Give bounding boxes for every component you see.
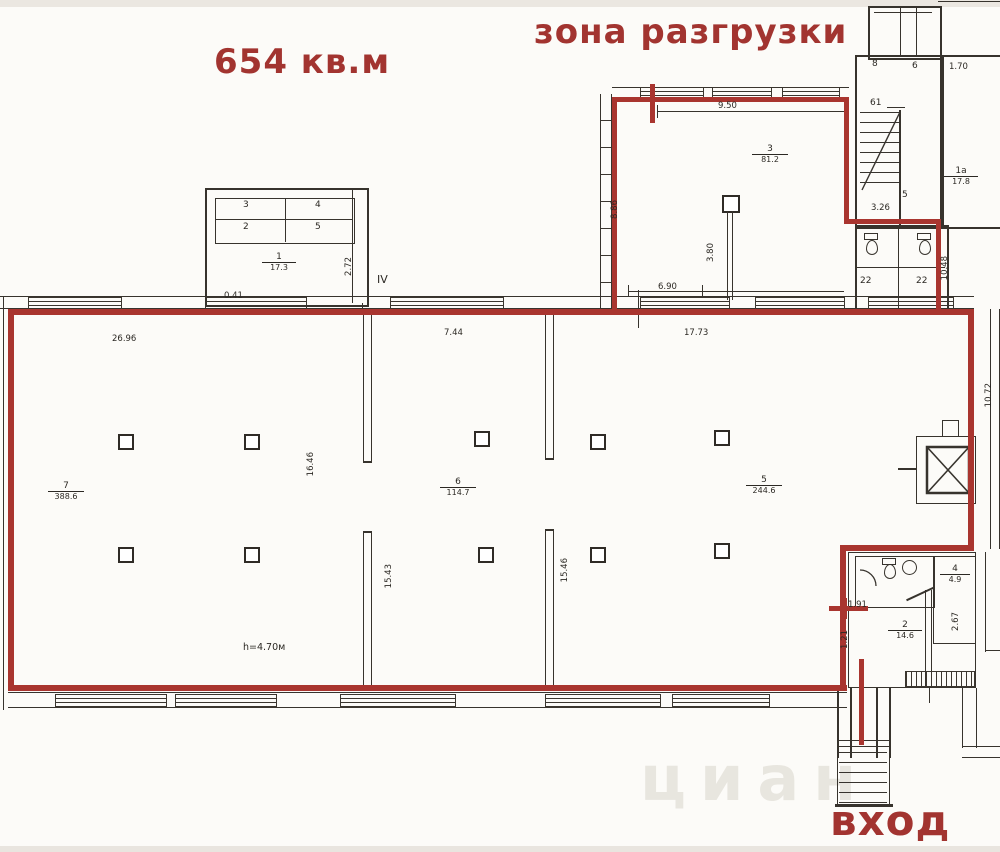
- shelf-divider: [215, 219, 353, 220]
- window: [175, 694, 277, 708]
- red-door-mark: [650, 84, 655, 123]
- dim-label: 3.80: [706, 243, 716, 262]
- toilet-icon: [866, 240, 878, 255]
- sink-icon: [902, 560, 917, 575]
- wall: [874, 12, 932, 13]
- column: [590, 547, 606, 563]
- toilet-icon: [919, 240, 931, 255]
- room-label-wc: 44.9: [940, 564, 970, 585]
- dim-label: 16.46: [306, 452, 316, 476]
- entrance-title: вход: [830, 796, 950, 845]
- stair-room: [940, 55, 1000, 229]
- floor-plan: циан: [0, 0, 1000, 852]
- dim-label: 7.44: [444, 328, 463, 338]
- room-label-vestibule: 214.6: [888, 620, 922, 641]
- dim-label: 10.48: [940, 256, 950, 280]
- column: [478, 547, 494, 563]
- scan-edge-top: [0, 0, 1000, 7]
- column: [474, 431, 490, 447]
- partition: [553, 315, 554, 459]
- door-line: [916, 6, 917, 56]
- stair-diagonal: [858, 110, 904, 192]
- column: [118, 434, 134, 450]
- cell-label: 22: [916, 276, 927, 286]
- dim-label: 6.90: [658, 282, 677, 292]
- wall: [727, 211, 728, 300]
- window: [672, 694, 770, 708]
- wall: [985, 650, 1000, 651]
- partition: [371, 532, 372, 685]
- stair-stringer: [899, 110, 901, 225]
- red-boundary: [844, 97, 849, 224]
- cell-label: 2: [243, 222, 249, 232]
- wall: [352, 188, 353, 303]
- entry-jamb: [837, 688, 852, 758]
- dim-tick: [702, 285, 703, 297]
- dim-line: [657, 111, 845, 112]
- partition: [545, 530, 546, 685]
- dim-label: 9.50: [718, 101, 737, 111]
- dim-tick: [887, 107, 905, 108]
- dim-label: 15.46: [560, 558, 570, 582]
- dim-label: 1.70: [949, 62, 968, 72]
- column: [118, 547, 134, 563]
- cell-label: 4: [315, 200, 321, 210]
- dim-label: 2.72: [344, 257, 354, 276]
- wall: [962, 757, 1000, 758]
- shaft-stub: [942, 420, 959, 437]
- room-label-hall-right: 5244.6: [746, 475, 782, 496]
- dim-tick: [628, 285, 629, 297]
- landing-line: [837, 746, 889, 747]
- dim-label: 2.67: [951, 612, 961, 631]
- scan-edge-bottom: [0, 846, 1000, 852]
- column: [244, 547, 260, 563]
- entry-jamb: [876, 688, 891, 758]
- partition: [363, 461, 372, 463]
- dim-label: 17.73: [684, 328, 708, 338]
- cell-label: 3: [243, 200, 249, 210]
- window: [545, 694, 661, 708]
- stair-vestibule: [868, 6, 942, 60]
- column: [722, 195, 740, 213]
- axis-label: IV: [377, 273, 388, 286]
- toilet-icon: [884, 564, 896, 579]
- column: [714, 543, 730, 559]
- area-title: 654 кв.м: [214, 42, 390, 82]
- partition: [545, 458, 554, 460]
- partition: [545, 315, 546, 459]
- radiator: [905, 671, 975, 687]
- room-label-hall-left: 7388.6: [48, 481, 84, 502]
- red-boundary: [8, 309, 974, 315]
- dim-label: 10.72: [984, 383, 994, 407]
- wall: [855, 267, 945, 268]
- dim-label: 0.41: [224, 291, 243, 301]
- unloading-zone-title: зона разгрузки: [534, 12, 847, 52]
- stair-label: 61: [870, 98, 881, 108]
- column: [244, 434, 260, 450]
- red-boundary: [8, 685, 847, 691]
- room-label-unloading: 381.2: [752, 144, 788, 165]
- dim-tick: [657, 105, 658, 118]
- door-line: [900, 6, 901, 56]
- wall: [962, 688, 963, 748]
- height-note: h=4.70м: [243, 642, 285, 653]
- red-boundary: [968, 309, 974, 551]
- red-boundary: [8, 309, 14, 691]
- stair-label: 5: [902, 190, 908, 200]
- toilet-icon: [917, 233, 931, 240]
- column: [590, 434, 606, 450]
- wall: [898, 468, 916, 470]
- red-door-mark: [859, 659, 864, 745]
- wall: [600, 94, 601, 311]
- red-boundary: [844, 219, 941, 224]
- room-label-hall-mid: 6114.7: [440, 477, 476, 498]
- wall: [732, 211, 733, 300]
- dim-label: 26.96: [112, 334, 136, 344]
- window: [340, 694, 456, 708]
- shelf-divider: [285, 198, 286, 242]
- dim-label: 1.91: [848, 600, 867, 610]
- wall: [976, 688, 977, 748]
- room-label-storeroom: 117.3: [262, 252, 296, 273]
- wall: [938, 1, 1000, 2]
- red-boundary: [840, 545, 974, 551]
- window: [55, 694, 167, 708]
- wall: [3, 296, 4, 710]
- wall: [985, 552, 986, 652]
- elevator-icon: [926, 446, 970, 494]
- column: [714, 430, 730, 446]
- dim-label: 3.26: [871, 203, 890, 213]
- dim-label: 8.86: [610, 200, 620, 219]
- partition: [545, 529, 554, 531]
- partition: [553, 530, 554, 685]
- partition: [363, 532, 364, 685]
- stair-label: 6: [912, 61, 918, 71]
- cell-label: 5: [315, 222, 321, 232]
- toilet-icon: [864, 233, 878, 240]
- stair-label: 8: [872, 59, 878, 69]
- wall: [990, 309, 991, 549]
- door-arc: [858, 568, 878, 588]
- wall: [929, 688, 930, 703]
- dim-label: 15.43: [384, 564, 394, 588]
- partition: [371, 315, 372, 462]
- partition: [363, 531, 372, 533]
- room-label-stair-room: 1а17.8: [944, 166, 978, 187]
- cell-label: 22: [860, 276, 871, 286]
- dim-label: 1.21: [840, 630, 850, 649]
- red-door-mark: [843, 598, 847, 619]
- wall: [8, 692, 847, 693]
- wall: [962, 746, 1000, 747]
- partition: [363, 315, 364, 462]
